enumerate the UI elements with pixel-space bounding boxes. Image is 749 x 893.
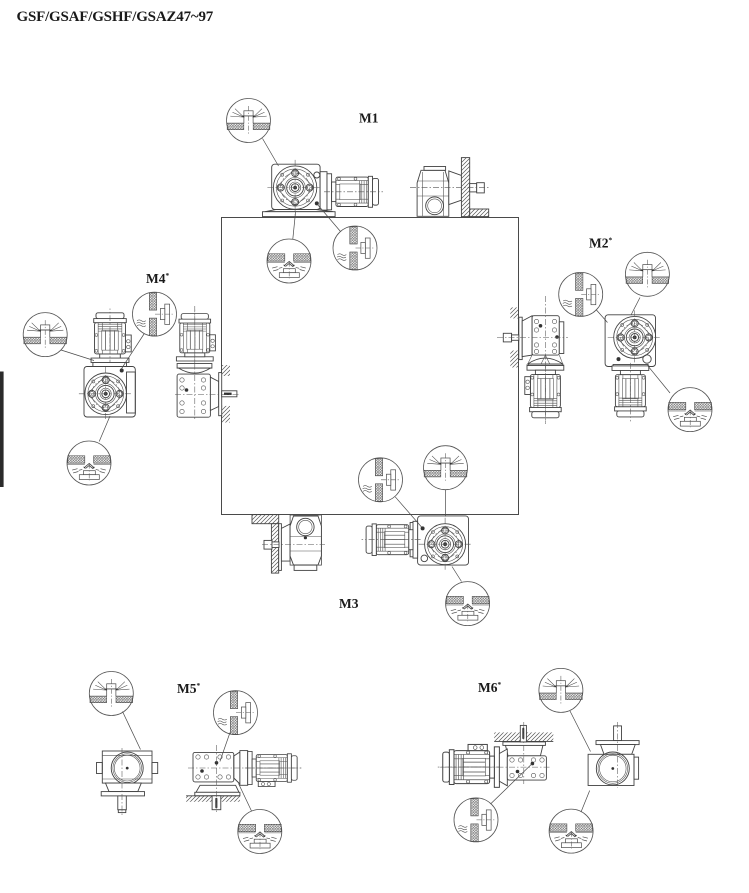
svg-text:M1: M1 [359, 111, 379, 126]
svg-text:GSF/GSAF/GSHF/GSAZ47~97: GSF/GSAF/GSHF/GSAZ47~97 [17, 9, 214, 25]
svg-text:M3: M3 [339, 596, 359, 611]
